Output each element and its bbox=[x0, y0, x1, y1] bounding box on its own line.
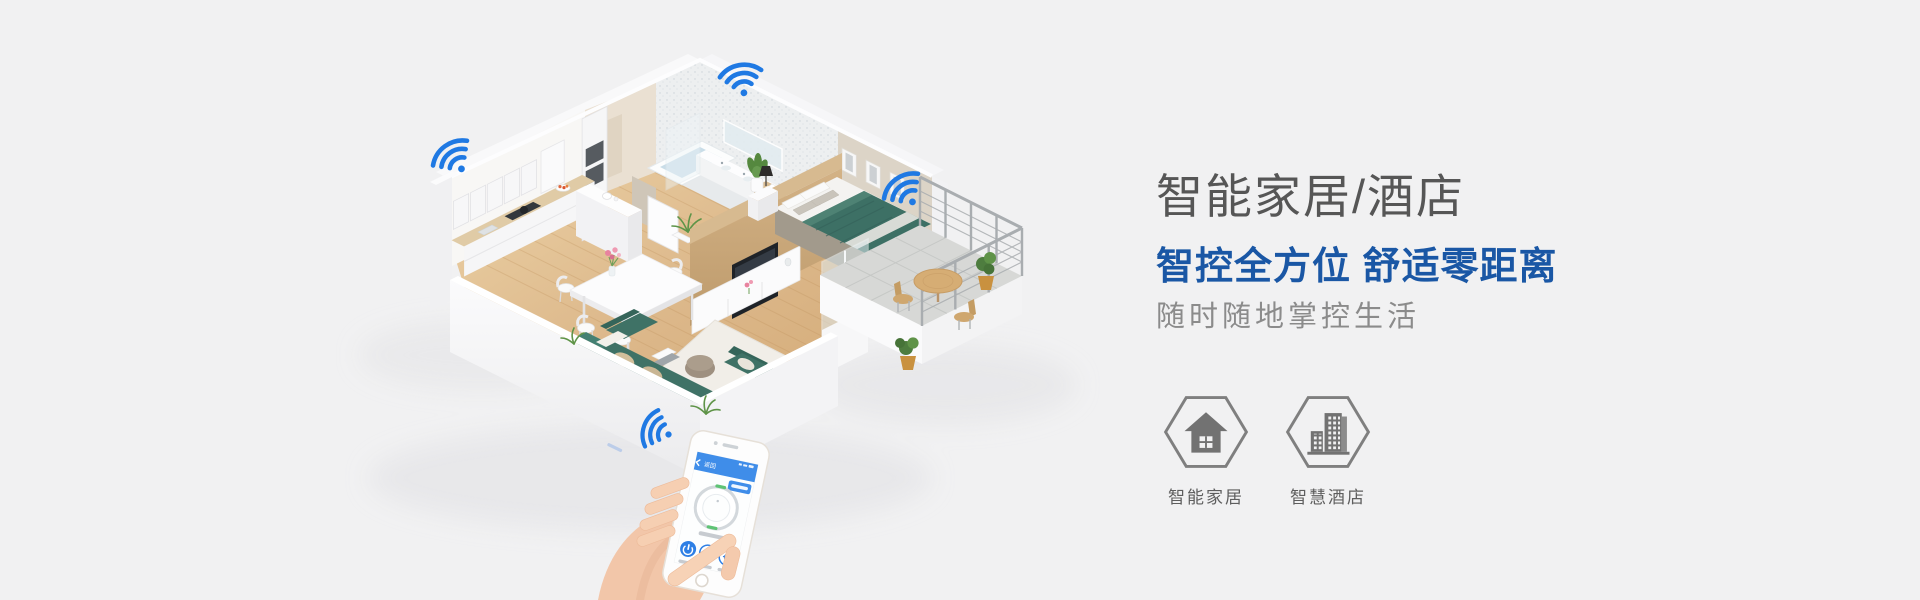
tagline: 随时随地掌控生活 bbox=[1156, 298, 1636, 337]
feature-smart-home[interactable]: 智能家居 bbox=[1158, 391, 1254, 508]
headline: 智控全方位 舒适零距离 bbox=[1156, 244, 1636, 290]
hero-copy: 智能家居/酒店 智控全方位 舒适零距离 随时随地掌控生活 智能家居 bbox=[1156, 170, 1636, 508]
hotel-buildings-icon bbox=[1285, 391, 1371, 473]
house-icon bbox=[1163, 391, 1249, 473]
feature-label: 智慧酒店 bbox=[1290, 483, 1366, 508]
pouf bbox=[685, 355, 715, 378]
feature-list: 智能家居 智慧酒店 bbox=[1158, 391, 1636, 508]
hero-banner: 返回 bbox=[0, 0, 1920, 600]
page-title: 智能家居/酒店 bbox=[1156, 170, 1636, 224]
feature-label: 智能家居 bbox=[1168, 483, 1244, 508]
feature-smart-hotel[interactable]: 智慧酒店 bbox=[1280, 391, 1376, 508]
